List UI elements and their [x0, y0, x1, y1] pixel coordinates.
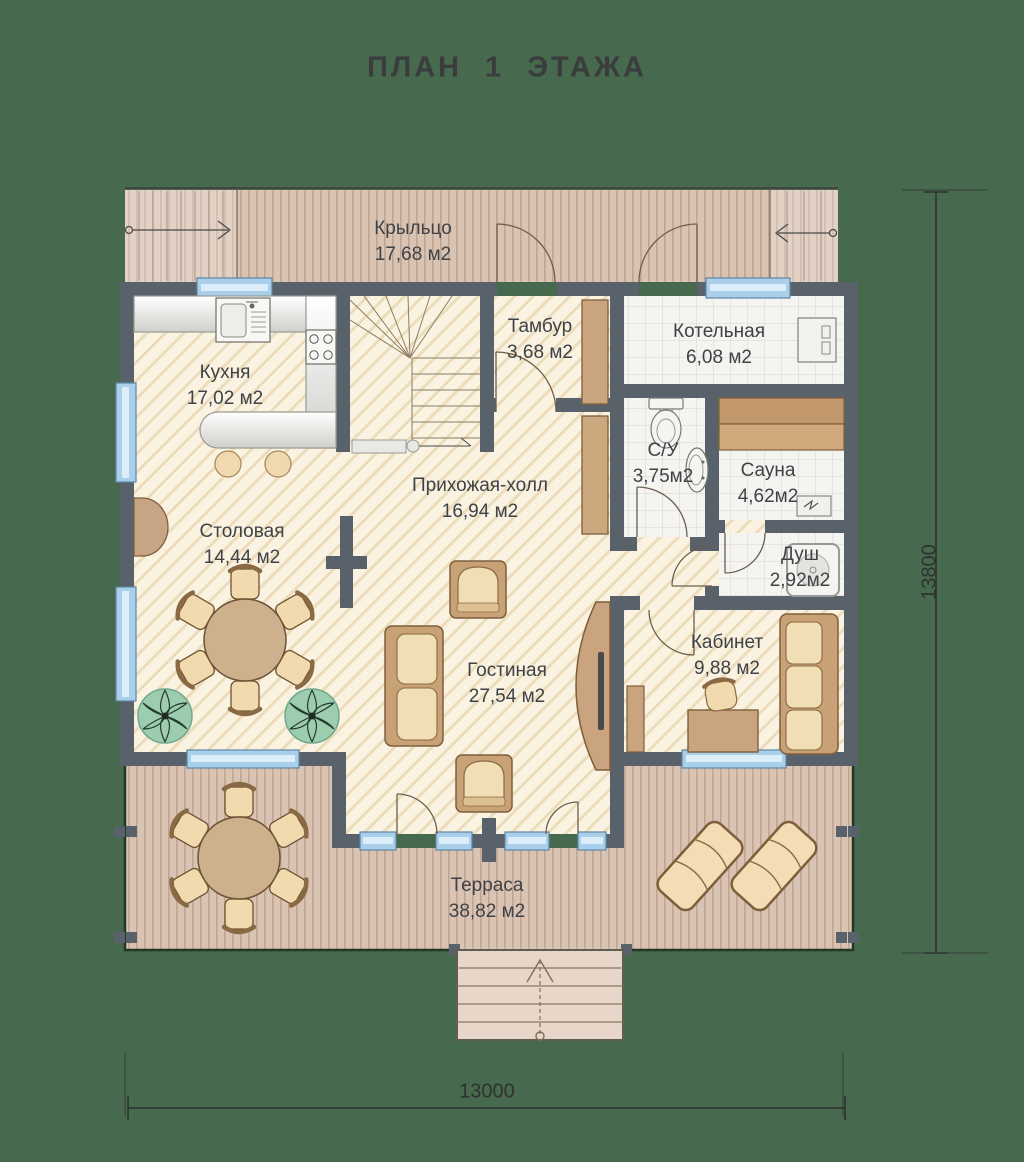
- stove: [306, 330, 336, 364]
- boiler-unit: [798, 318, 836, 362]
- window-dining-left: [116, 587, 136, 701]
- armchair: [450, 561, 506, 618]
- window-kitchen-top: [197, 278, 272, 298]
- floor-plan-drawing: [0, 0, 1024, 1162]
- dimension-height: 13800: [919, 544, 942, 600]
- sauna-heater: [797, 496, 831, 516]
- washbasin: [686, 448, 708, 492]
- hall-console: [352, 440, 419, 453]
- office-sofa: [780, 614, 838, 754]
- window-kitchen-left: [116, 383, 136, 482]
- dimension-width: 13000: [459, 1081, 515, 1104]
- window-bay-2: [436, 832, 472, 850]
- porch-stairs-left: [125, 190, 237, 282]
- potted-plant: [138, 689, 192, 743]
- window-bay-4: [578, 832, 606, 850]
- hall-closet: [582, 416, 608, 534]
- office-chair: [703, 677, 738, 712]
- sauna-benches: [719, 398, 844, 450]
- page-title: ПЛАН 1 ЭТАЖА: [367, 52, 647, 85]
- kitchen-peninsula: [200, 412, 336, 448]
- office-desk: [688, 710, 758, 752]
- window-boiler-top: [706, 278, 790, 298]
- window-office-bottom: [682, 750, 786, 768]
- shower-tray: [787, 544, 839, 596]
- porch-stairs-right: [770, 190, 838, 282]
- potted-plant: [285, 689, 339, 743]
- sink: [216, 298, 270, 342]
- living-sofa: [385, 626, 443, 746]
- window-dining-bottom: [187, 750, 299, 768]
- bar-stool: [265, 451, 291, 477]
- office-cabinet: [627, 686, 644, 752]
- tambour-wardrobe: [582, 300, 608, 404]
- toilet: [649, 398, 683, 448]
- armchair: [456, 755, 512, 812]
- window-bay-1: [360, 832, 396, 850]
- terrace-stairs: [457, 950, 623, 1040]
- window-bay-3: [505, 832, 549, 850]
- bar-stool: [215, 451, 241, 477]
